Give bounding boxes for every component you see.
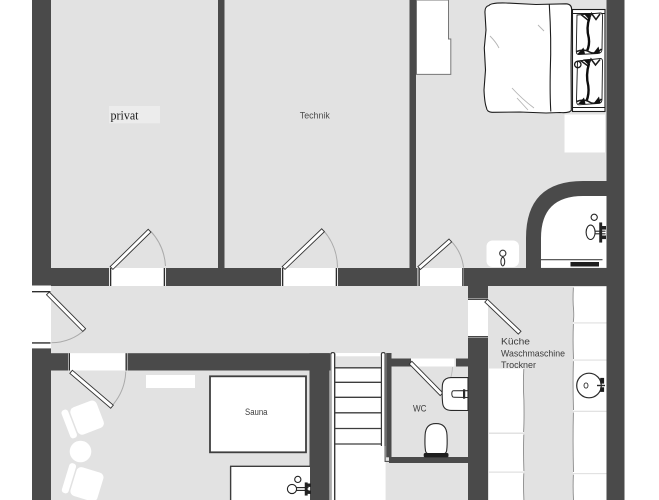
svg-text:Trockner: Trockner	[501, 359, 536, 370]
svg-text:Küche: Küche	[501, 336, 530, 347]
svg-text:Sauna: Sauna	[245, 406, 268, 417]
svg-text:Waschmaschine: Waschmaschine	[501, 348, 565, 359]
svg-text:privat: privat	[111, 109, 139, 123]
svg-text:WC: WC	[413, 403, 427, 414]
svg-text:Technik: Technik	[300, 110, 330, 121]
